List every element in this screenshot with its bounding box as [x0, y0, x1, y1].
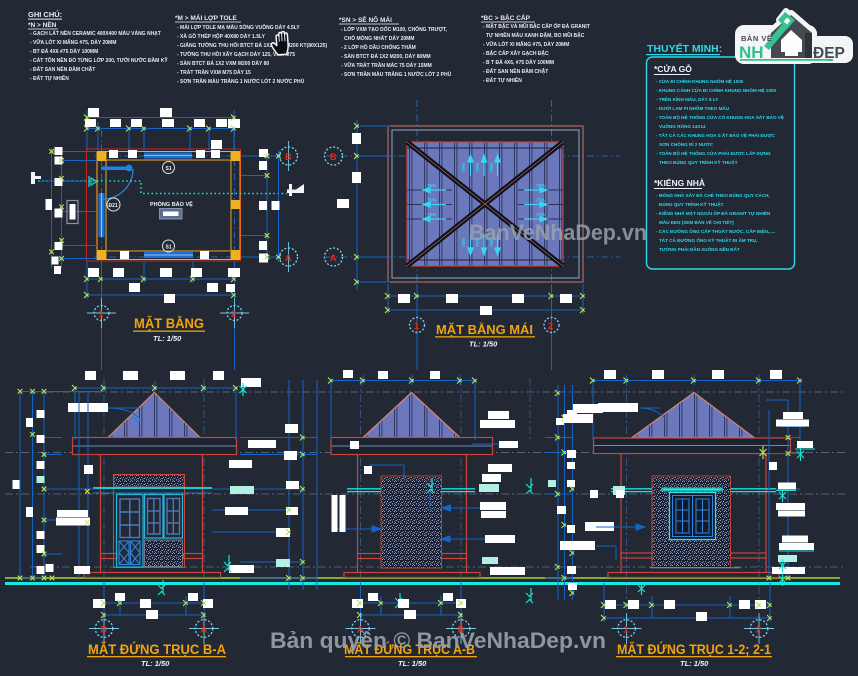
svg-text:*CỬA GỖ: *CỬA GỖ [654, 63, 692, 74]
svg-text:CHỖ MỎNG NHẤT DÀY 20MM: CHỖ MỎNG NHẤT DÀY 20MM [344, 35, 414, 42]
svg-text:VUÔNG RỖNG 14X14: VUÔNG RỖNG 14X14 [659, 122, 706, 129]
svg-text:2: 2 [231, 309, 236, 319]
svg-text:MÀU ĐEN (XEM BẢN VẼ CHI TIẾT): MÀU ĐEN (XEM BẢN VẼ CHI TIẾT) [659, 219, 734, 225]
svg-text:MẶT BẰNG MÁI: MẶT BẰNG MÁI [436, 322, 533, 337]
svg-text:- DƯỚI LAM PI NHÔM THEO MẪU: - DƯỚI LAM PI NHÔM THEO MẪU [656, 104, 730, 111]
svg-text:- MÓNG NHÀ XÂY ĐÁ CHẺ THEO ĐÚN: - MÓNG NHÀ XÂY ĐÁ CHẺ THEO ĐÚNG QUY CÁCH… [656, 191, 770, 198]
svg-text:MẶT BẰNG: MẶT BẰNG [134, 314, 204, 331]
svg-text:TẤT CẢ ĐƯỜNG ỐNG KỸ THUẬT ĐI: TẤT CẢ ĐƯỜNG ỐNG KỸ THUẬT ĐI ÂM TRỤ, [659, 236, 758, 243]
svg-text:A: A [201, 625, 208, 635]
svg-text:1: 1 [414, 321, 419, 331]
svg-text:TL: 1/50: TL: 1/50 [153, 334, 182, 343]
svg-text:S1: S1 [166, 166, 172, 172]
svg-text:- ĐẤT SAN NỀN ĐẦM CHẶT: - ĐẤT SAN NỀN ĐẦM CHẶT [483, 68, 548, 75]
svg-text:75%: 75% [427, 198, 436, 203]
svg-text:B: B [101, 625, 108, 635]
svg-text:- 2 LỚP HỒ DẦU CHỐNG THẤM: - 2 LỚP HỒ DẦU CHỐNG THẤM [341, 43, 416, 51]
svg-text:75%: 75% [427, 212, 436, 217]
svg-text:- BẬC CẤP XÂY GẠCH ĐẶC: - BẬC CẤP XÂY GẠCH ĐẶC [483, 50, 549, 57]
svg-text:MẶT ĐỨNG TRỤC 1-2; 2-1: MẶT ĐỨNG TRỤC 1-2; 2-1 [617, 642, 771, 657]
svg-text:- VỮA LÓT XI MĂNG #75, DÀY 20M: - VỮA LÓT XI MĂNG #75, DÀY 20MM [483, 40, 569, 48]
svg-text:2: 2 [756, 625, 761, 635]
svg-text:MẶT ĐỨNG TRỤC B-A: MẶT ĐỨNG TRỤC B-A [88, 642, 226, 657]
svg-text:- VỮA LÓT XI MĂNG #75, DÀY 20M: - VỮA LÓT XI MĂNG #75, DÀY 20MM [30, 38, 116, 46]
svg-text:BanVeNhaDep.vn: BanVeNhaDep.vn [469, 220, 647, 245]
svg-text:*SN > SÊ NÔ MÁI: *SN > SÊ NÔ MÁI [339, 15, 392, 24]
svg-text:- ĐẤT TỰ NHIÊN: - ĐẤT TỰ NHIÊN [483, 76, 522, 84]
svg-text:B: B [330, 152, 337, 162]
svg-text:- SƠN TRẦN MÀU TRẮNG 1 NƯỚC LÓ: - SƠN TRẦN MÀU TRẮNG 1 NƯỚC LÓT 2 PHỦ [341, 70, 452, 78]
svg-text:75%: 75% [536, 183, 545, 188]
svg-text:TL: 1/50: TL: 1/50 [469, 340, 498, 349]
svg-text:- TRÊN KÍNH MÀU, DÀY 5 LY: - TRÊN KÍNH MÀU, DÀY 5 LY [656, 95, 718, 102]
svg-text:S1: S1 [166, 245, 172, 251]
svg-text:THEO ĐÚNG QUY TRÌNH KỸ THUẬT: THEO ĐÚNG QUY TRÌNH KỸ THUẬT [659, 158, 738, 165]
svg-text:- CÁC ĐƯỜNG ỐNG CẤP THOÁT NƯỚC: - CÁC ĐƯỜNG ỐNG CẤP THOÁT NƯỚC, CẤP ĐIỆN… [656, 227, 775, 234]
svg-text:- GIẰNG TƯỜNG THU HỒI BTCT ĐÁ: - GIẰNG TƯỜNG THU HỒI BTCT ĐÁ 1X2 VXM M2… [177, 41, 327, 49]
svg-text:BẢN VẼ: BẢN VẼ [741, 34, 772, 43]
svg-text:- CÁT TÔN NỀN ĐỔ TỪNG LỚP 200,: - CÁT TÔN NỀN ĐỔ TỪNG LỚP 200, TƯỚI NƯỚC… [30, 56, 168, 64]
svg-text:TL: 1/50: TL: 1/50 [398, 659, 427, 668]
svg-text:Bản quyền © BanVeNhaDep.vn: Bản quyền © BanVeNhaDep.vn [270, 628, 606, 653]
svg-text:- KHUNG CÁNH CỬA ĐI CHÍNH KHU: - KHUNG CÁNH CỬA ĐI CHÍNH KHUNG NHÔM HỆ … [656, 86, 776, 93]
svg-text:- SƠN TRẦN MÀU TRẮNG 1 NƯỚC LÓ: - SƠN TRẦN MÀU TRẮNG 1 NƯỚC LÓT 2 NƯỚC P… [177, 77, 305, 85]
svg-text:TƯỜNG PHẢI DẪN XUỐNG NỀN ĐẤT: TƯỜNG PHẢI DẪN XUỐNG NỀN ĐẤT [659, 245, 740, 252]
svg-text:TỰ NHIÊN MÀU XANH ĐẬM, BO MŨI: TỰ NHIÊN MÀU XANH ĐẬM, BO MŨI BẬC [486, 31, 585, 39]
svg-text:75%: 75% [427, 183, 436, 188]
svg-text:- TOÀN BỘ HỆ THỐNG CỬA CÓ KHU: - TOÀN BỘ HỆ THỐNG CỬA CÓ KHUNG HOA SẮT … [656, 113, 784, 120]
svg-text:- MẶT BẬC VÀ MŨI BẬC CẤP ỐP ĐÁ: - MẶT BẬC VÀ MŨI BẬC CẤP ỐP ĐÁ GRANIT [483, 23, 590, 30]
svg-text:- LỚP VXM TẠO DỐC M100, CHỐNG: - LỚP VXM TẠO DỐC M100, CHỐNG TRƯỢT, [341, 25, 448, 33]
svg-text:1: 1 [99, 309, 104, 319]
svg-text:GHI CHÚ:: GHI CHÚ: [28, 10, 62, 19]
svg-text:- TOÀN BỘ HỆ THỐNG CỬA PHẢI: - TOÀN BỘ HỆ THỐNG CỬA PHẢI ĐƯỢC LẮP DỰN… [656, 149, 771, 156]
svg-text:- TRÁT TRẦN VXM M75 DÀY 15: - TRÁT TRẦN VXM M75 DÀY 15 [177, 69, 251, 76]
svg-text:1: 1 [624, 625, 629, 635]
svg-text:TL: 1/50: TL: 1/50 [680, 659, 709, 668]
svg-text:Đ21: Đ21 [109, 203, 118, 209]
svg-text:*M > MÁI LỢP TOLE: *M > MÁI LỢP TOLE [175, 13, 237, 22]
svg-text:- SÀN BTCT ĐÁ 1X2 VXM M200 DÀY: - SÀN BTCT ĐÁ 1X2 VXM M200 DÀY 80 [177, 60, 269, 67]
svg-text:- XÀ GỒ THÉP HỘP 40X80 DÀY 1.5: - XÀ GỒ THÉP HỘP 40X80 DÀY 1.5LY [177, 32, 266, 40]
svg-text:- GẠCH LÁT NỀN CERAMIC 400X400: - GẠCH LÁT NỀN CERAMIC 400X400 MÀU VÀNG … [30, 30, 161, 37]
svg-text:- B T ĐÁ 4X6, #75 DÀY 100MM: - B T ĐÁ 4X6, #75 DÀY 100MM [483, 59, 554, 66]
svg-text:75%: 75% [461, 238, 466, 247]
svg-text:- ĐẤT TỰ NHIÊN: - ĐẤT TỰ NHIÊN [30, 74, 69, 82]
svg-text:*KIỂNG NHÀ: *KIỂNG NHÀ [654, 177, 705, 188]
svg-text:A: A [330, 253, 337, 263]
svg-text:- ĐẤT SAN NỀN ĐẦM CHẶT: - ĐẤT SAN NỀN ĐẦM CHẶT [30, 66, 95, 73]
svg-text:A: A [285, 253, 292, 263]
svg-text:75%: 75% [461, 163, 466, 172]
svg-text:75%: 75% [489, 163, 494, 172]
svg-text:- SÀN BTCT ĐÁ 1X2 M200, DÀY 80: - SÀN BTCT ĐÁ 1X2 M200, DÀY 80MM [341, 53, 431, 60]
svg-text:PHÒNG BẢO VỆ: PHÒNG BẢO VỆ [150, 200, 193, 208]
svg-text:B: B [285, 152, 292, 162]
svg-text:75%: 75% [536, 212, 545, 217]
svg-text:2: 2 [548, 321, 553, 331]
svg-text:75%: 75% [475, 163, 480, 172]
svg-text:- VỮA TRÁT TRẦN MÁC 75 DÀY 15M: - VỮA TRÁT TRẦN MÁC 75 DÀY 15MM [341, 62, 432, 69]
svg-text:- MÁI LỢP TOLE MẠ MÀU SÓNG VUÔ: - MÁI LỢP TOLE MẠ MÀU SÓNG VUÔNG DÀY 4.5… [177, 23, 300, 31]
svg-text:- KIỂNG NHÀ MẶT NGOÀI ỐP ĐÁ: - KIỂNG NHÀ MẶT NGOÀI ỐP ĐÁ GRANIT TỰ NH… [656, 209, 771, 216]
svg-text:- TẤT CẢ CÁC KHUNG HOA S ẮT: - TẤT CẢ CÁC KHUNG HOA S ẮT BẢO VỆ PHẢI … [656, 131, 776, 138]
svg-text:TL: 1/50: TL: 1/50 [141, 659, 170, 668]
svg-text:75%: 75% [536, 198, 545, 203]
svg-text:- CỬA ĐI CHÍNH KHUNG NHÔM HỆ 1: - CỬA ĐI CHÍNH KHUNG NHÔM HỆ 1000 [656, 77, 744, 84]
svg-text:ĐÚNG QUY TRÌNH KỸ THUẬT: ĐÚNG QUY TRÌNH KỸ THUẬT [659, 200, 724, 207]
svg-text:- BT ĐÁ 4X6 #75 DÀY 100MM: - BT ĐÁ 4X6 #75 DÀY 100MM [30, 48, 98, 55]
svg-text:THUYẾT MINH:: THUYẾT MINH: [647, 42, 722, 55]
svg-text:SƠN CHỐNG RỈ 2 NƯỚC: SƠN CHỐNG RỈ 2 NƯỚC [659, 140, 714, 147]
